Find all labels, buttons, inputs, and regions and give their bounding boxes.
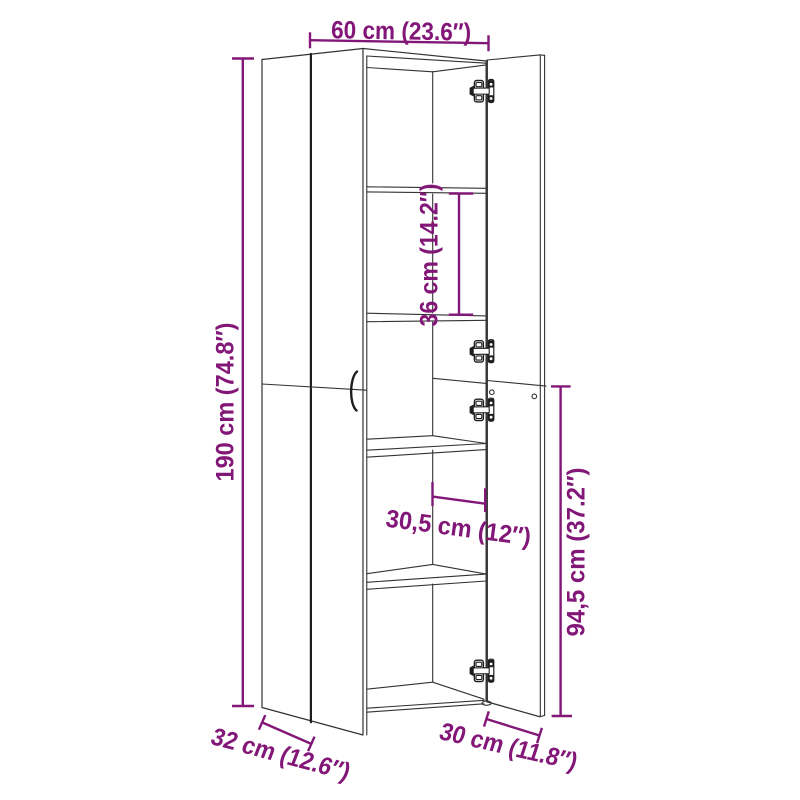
svg-text:36 cm (14.2″): 36 cm (14.2″) bbox=[416, 184, 444, 327]
svg-text:190 cm (74.8″): 190 cm (74.8″) bbox=[212, 323, 240, 482]
svg-text:60 cm (23.6″): 60 cm (23.6″) bbox=[331, 16, 471, 46]
svg-text:94,5 cm (37.2″): 94,5 cm (37.2″) bbox=[563, 468, 591, 637]
